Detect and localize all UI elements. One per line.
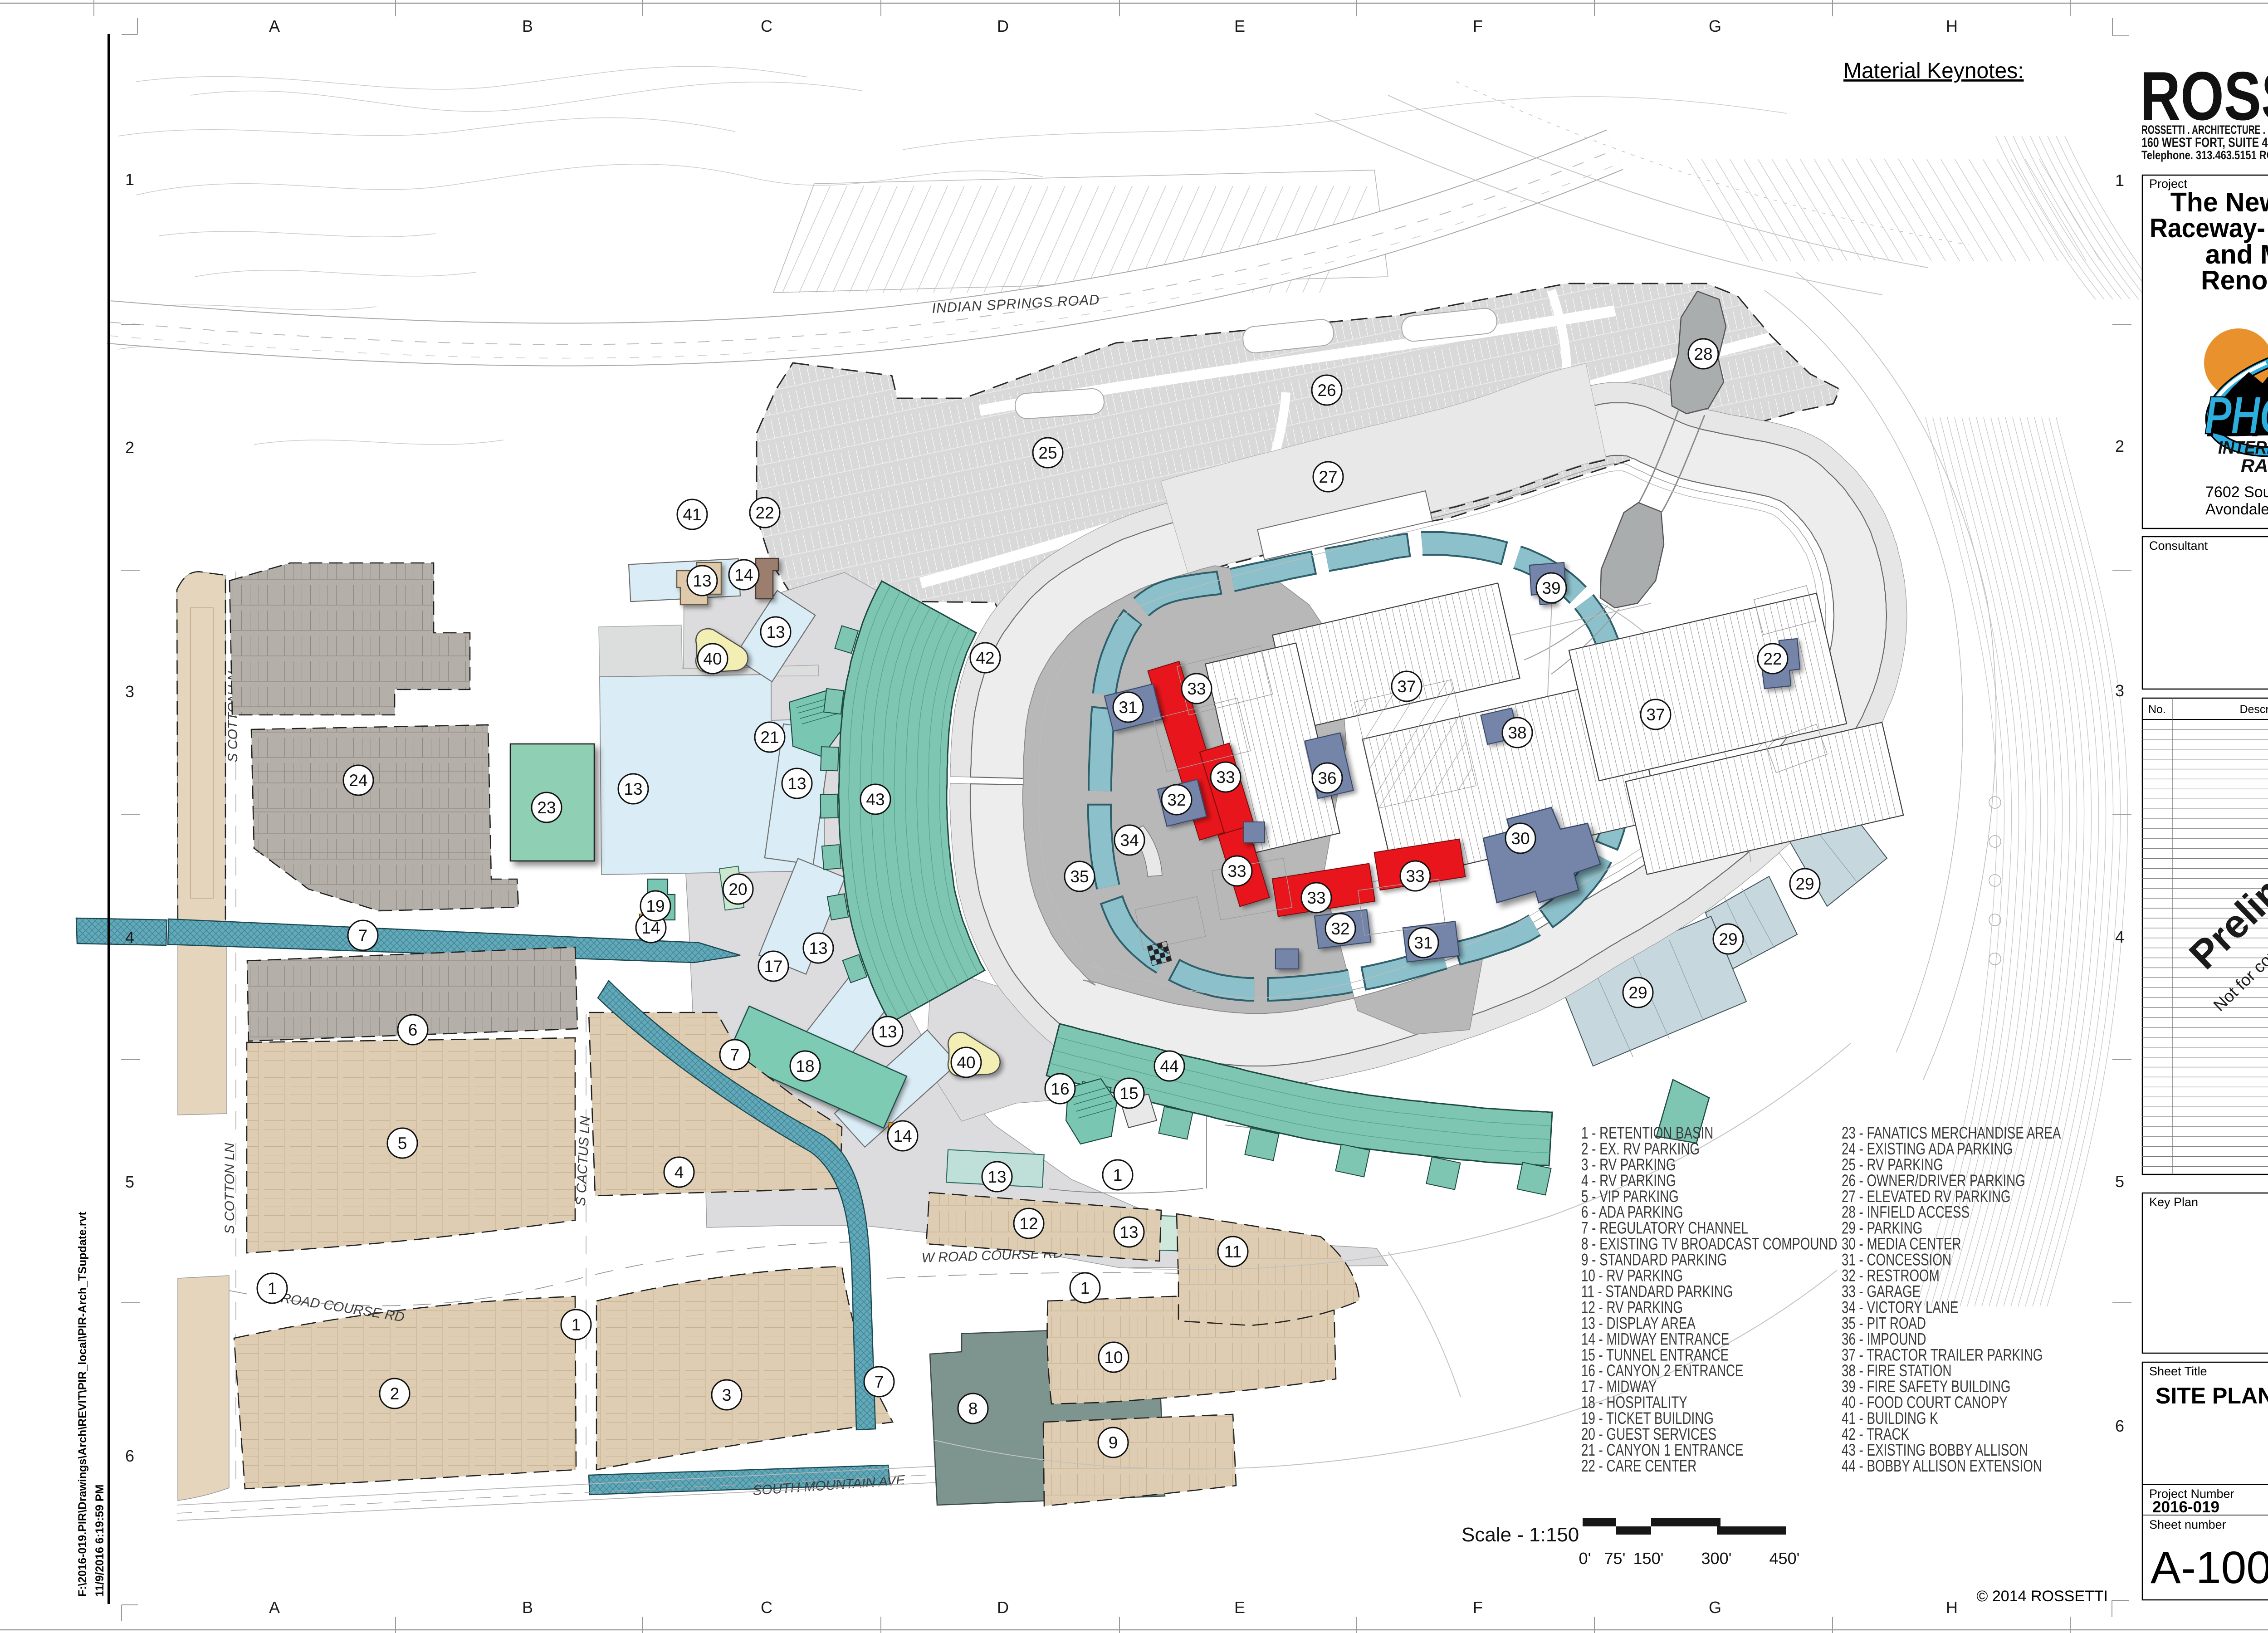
svg-text:13: 13: [624, 780, 642, 798]
svg-text:27: 27: [1319, 468, 1337, 486]
svg-text:S COTTON LN: S COTTON LN: [222, 1143, 237, 1234]
svg-text:4: 4: [125, 928, 134, 947]
svg-text:37: 37: [1397, 677, 1416, 696]
svg-text:42: 42: [976, 649, 994, 667]
svg-text:SITE PLAN: SITE PLAN: [2156, 1383, 2268, 1408]
svg-text:20: 20: [728, 880, 747, 899]
svg-text:1: 1: [268, 1279, 277, 1298]
svg-text:40: 40: [957, 1053, 975, 1072]
svg-text:D: D: [997, 1598, 1009, 1617]
svg-text:7: 7: [730, 1046, 740, 1064]
svg-text:6: 6: [125, 1447, 134, 1465]
svg-text:RACEWAY: RACEWAY: [2241, 456, 2268, 476]
svg-text:B: B: [522, 1598, 533, 1617]
svg-text:2: 2: [2115, 437, 2124, 455]
svg-text:6: 6: [2115, 1417, 2124, 1435]
svg-text:E: E: [1234, 17, 1245, 35]
svg-text:9: 9: [1109, 1433, 1118, 1452]
svg-text:75': 75': [1604, 1549, 1626, 1568]
svg-text:33: 33: [1216, 768, 1235, 787]
svg-text:19: 19: [646, 897, 665, 915]
svg-text:26: 26: [1317, 381, 1336, 400]
svg-text:44: 44: [1160, 1057, 1178, 1076]
svg-text:H: H: [1946, 17, 1958, 35]
svg-text:2: 2: [390, 1384, 400, 1403]
svg-text:1: 1: [572, 1315, 581, 1334]
svg-text:INTERNATIONAL: INTERNATIONAL: [2218, 438, 2268, 458]
svg-text:18: 18: [796, 1057, 814, 1076]
svg-text:17: 17: [764, 957, 782, 976]
svg-text:Raceway- Grandstand: Raceway- Grandstand: [2150, 213, 2268, 243]
svg-text:D: D: [997, 17, 1009, 35]
svg-text:1: 1: [125, 170, 134, 189]
svg-text:23: 23: [537, 798, 556, 817]
svg-text:G: G: [1709, 17, 1721, 35]
svg-text:150': 150': [1633, 1549, 1664, 1568]
svg-text:11: 11: [1224, 1242, 1242, 1261]
svg-text:33: 33: [1227, 862, 1246, 880]
svg-text:41: 41: [683, 505, 701, 524]
svg-text:31: 31: [1119, 698, 1137, 717]
svg-text:450': 450': [1769, 1549, 1800, 1568]
svg-text:5: 5: [125, 1173, 134, 1191]
svg-text:12: 12: [1019, 1214, 1038, 1233]
svg-text:35: 35: [1070, 867, 1089, 886]
svg-text:36: 36: [1318, 769, 1336, 787]
svg-text:13: 13: [693, 572, 711, 590]
svg-text:Renovations: Renovations: [2201, 265, 2268, 295]
svg-text:29: 29: [1719, 930, 1737, 949]
svg-text:6: 6: [408, 1021, 418, 1039]
svg-text:300': 300': [1701, 1549, 1732, 1568]
svg-text:H: H: [1946, 1598, 1958, 1617]
svg-text:Scale - 1:150: Scale - 1:150: [1461, 1524, 1579, 1546]
svg-text:31: 31: [1414, 934, 1432, 952]
svg-text:2016-019: 2016-019: [2152, 1498, 2219, 1516]
svg-text:2: 2: [125, 438, 134, 457]
svg-text:39: 39: [1542, 579, 1560, 597]
svg-text:1: 1: [1080, 1279, 1090, 1297]
svg-text:33: 33: [1406, 867, 1424, 885]
svg-text:Sheet Title: Sheet Title: [2149, 1364, 2207, 1378]
svg-text:13: 13: [878, 1022, 897, 1041]
svg-text:Key Plan: Key Plan: [2149, 1195, 2198, 1209]
svg-text:30: 30: [1511, 829, 1530, 848]
svg-text:Description: Description: [2239, 703, 2268, 716]
svg-text:13: 13: [809, 939, 827, 958]
svg-text:32: 32: [1167, 791, 1186, 809]
svg-text:B: B: [522, 17, 533, 35]
svg-text:34: 34: [1120, 831, 1139, 850]
svg-text:8: 8: [968, 1399, 978, 1418]
svg-text:1: 1: [2115, 171, 2124, 190]
svg-text:11/9/2016 6:19:59 PM: 11/9/2016 6:19:59 PM: [93, 1485, 106, 1597]
svg-text:16: 16: [1051, 1080, 1069, 1098]
svg-text:F: F: [1473, 1598, 1483, 1617]
svg-text:Consultant: Consultant: [2149, 539, 2208, 552]
svg-text:13: 13: [987, 1168, 1006, 1186]
svg-text:7: 7: [875, 1373, 884, 1391]
svg-text:3: 3: [125, 682, 134, 701]
svg-text:38: 38: [1508, 724, 1526, 742]
svg-text:7602 South Avondale Blvd: 7602 South Avondale Blvd: [2205, 484, 2268, 501]
svg-text:43: 43: [866, 790, 885, 809]
svg-text:22: 22: [1763, 650, 1782, 668]
svg-text:Sheet number: Sheet number: [2149, 1518, 2226, 1531]
svg-text:F:\2016-019.PIR\Drawings\Arch\: F:\2016-019.PIR\Drawings\Arch\REVIT\PIR_…: [76, 1211, 89, 1597]
svg-text:40: 40: [703, 650, 722, 668]
svg-text:No.: No.: [2148, 703, 2166, 716]
svg-text:25: 25: [1038, 444, 1057, 462]
svg-text:A: A: [269, 1598, 280, 1617]
svg-text:21: 21: [760, 728, 779, 747]
svg-text:5: 5: [398, 1134, 407, 1153]
svg-text:0': 0': [1579, 1549, 1591, 1568]
svg-text:22 - CARE CENTER: 22 - CARE CENTER: [1581, 1456, 1696, 1475]
svg-text:37: 37: [1646, 705, 1665, 724]
svg-text:33: 33: [1307, 889, 1325, 907]
svg-text:F: F: [1473, 17, 1483, 35]
svg-text:14: 14: [734, 566, 753, 584]
svg-text:7: 7: [358, 926, 368, 945]
svg-text:A-100: A-100: [2151, 1542, 2268, 1593]
svg-text:13: 13: [787, 774, 806, 793]
svg-text:13: 13: [766, 623, 785, 641]
svg-text:1: 1: [1113, 1166, 1123, 1184]
svg-text:Avondale, Arizona 85353: Avondale, Arizona 85353: [2205, 501, 2268, 518]
svg-text:C: C: [761, 17, 772, 35]
svg-text:32: 32: [1331, 919, 1349, 938]
svg-text:4: 4: [2115, 928, 2124, 946]
svg-text:A: A: [269, 17, 280, 35]
svg-text:4: 4: [675, 1163, 684, 1182]
svg-text:29: 29: [1795, 875, 1814, 893]
svg-text:5: 5: [2115, 1172, 2124, 1191]
svg-text:ROSSETTI . ARCHITECTURE . INTE: ROSSETTI . ARCHITECTURE . INTERIORS . GR…: [2141, 123, 2268, 137]
svg-text:© 2014 ROSSETTI: © 2014 ROSSETTI: [1976, 1588, 2108, 1605]
svg-text:G: G: [1709, 1598, 1721, 1617]
svg-text:3: 3: [722, 1386, 732, 1404]
svg-text:E: E: [1234, 1598, 1245, 1617]
svg-text:C: C: [761, 1598, 772, 1617]
svg-text:Telephone. 313.463.5151 ROSS: Telephone. 313.463.5151 ROSSETTI.COM Fax…: [2141, 148, 2268, 162]
svg-text:15: 15: [1119, 1084, 1138, 1103]
svg-text:44 - BOBBY ALLISON EXTENSION: 44 - BOBBY ALLISON EXTENSION: [1842, 1456, 2042, 1475]
svg-text:14: 14: [893, 1127, 912, 1145]
svg-text:33: 33: [1187, 680, 1206, 698]
svg-text:24: 24: [349, 771, 367, 790]
svg-text:Material Keynotes:: Material Keynotes:: [1843, 59, 2024, 83]
svg-text:3: 3: [2115, 681, 2124, 700]
svg-text:PHOENIX: PHOENIX: [2204, 386, 2268, 445]
svg-text:10: 10: [1104, 1348, 1123, 1367]
svg-text:22: 22: [755, 504, 774, 522]
svg-text:29: 29: [1628, 983, 1647, 1002]
svg-text:13: 13: [1119, 1223, 1138, 1242]
svg-text:28: 28: [1694, 345, 1712, 363]
